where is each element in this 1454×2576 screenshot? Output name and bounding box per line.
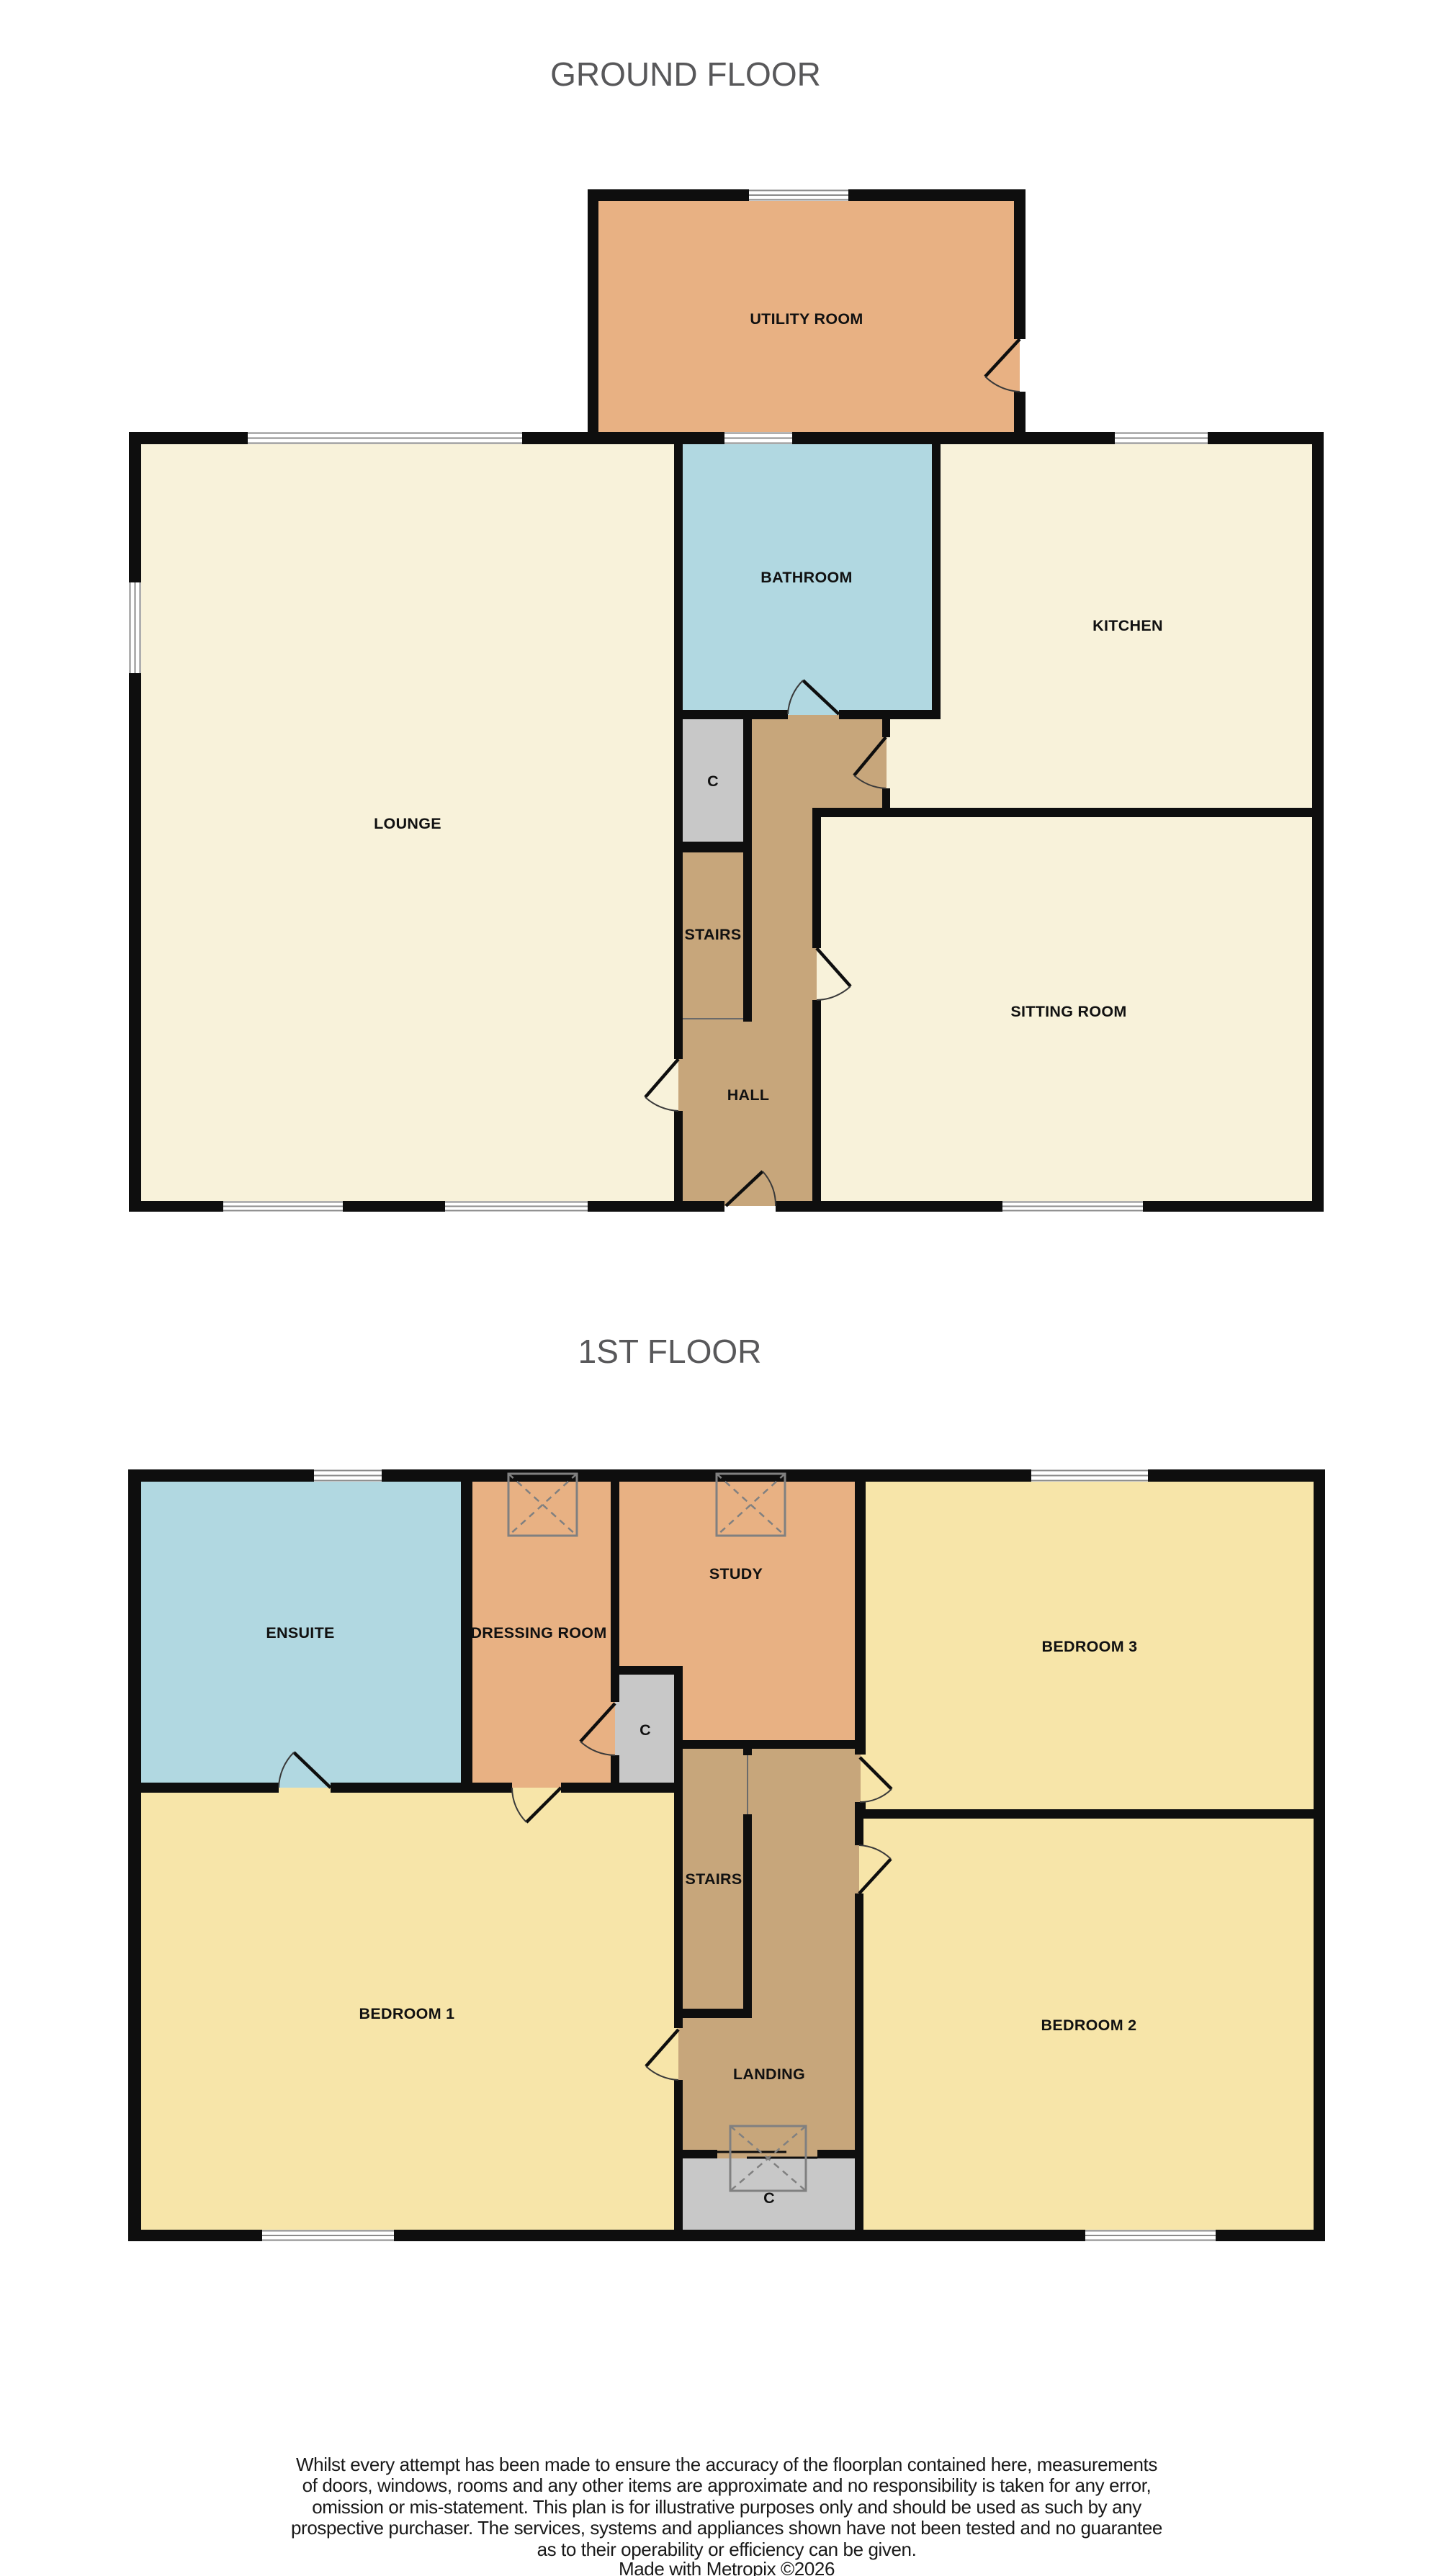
svg-text:Whilst every attempt has been: Whilst every attempt has been made to en… <box>296 2454 1157 2475</box>
svg-text:of doors, windows, rooms and a: of doors, windows, rooms and any other i… <box>302 2474 1152 2496</box>
svg-text:BATHROOM: BATHROOM <box>760 569 852 586</box>
svg-text:LANDING: LANDING <box>733 2066 805 2083</box>
svg-text:STAIRS: STAIRS <box>684 926 741 943</box>
svg-text:BEDROOM 3: BEDROOM 3 <box>1042 1638 1138 1655</box>
svg-text:prospective purchaser. The ser: prospective purchaser. The services, sys… <box>291 2517 1162 2539</box>
svg-text:C: C <box>640 1721 651 1739</box>
svg-text:STAIRS: STAIRS <box>685 1870 742 1888</box>
svg-text:C: C <box>707 773 719 790</box>
svg-text:KITCHEN: KITCHEN <box>1092 617 1163 634</box>
svg-text:Made with Metropix ©2026: Made with Metropix ©2026 <box>619 2558 835 2576</box>
svg-text:omission or mis-statement. Thi: omission or mis-statement. This plan is … <box>312 2496 1141 2518</box>
svg-text:LOUNGE: LOUNGE <box>374 815 441 832</box>
svg-text:STUDY: STUDY <box>709 1565 763 1582</box>
svg-text:1ST FLOOR: 1ST FLOOR <box>578 1333 762 1370</box>
svg-text:SITTING ROOM: SITTING ROOM <box>1010 1003 1126 1020</box>
svg-text:HALL: HALL <box>727 1086 770 1104</box>
svg-text:DRESSING ROOM: DRESSING ROOM <box>470 1624 606 1641</box>
svg-text:BEDROOM 2: BEDROOM 2 <box>1041 2017 1137 2034</box>
svg-text:ENSUITE: ENSUITE <box>266 1624 334 1641</box>
svg-text:BEDROOM 1: BEDROOM 1 <box>359 2005 455 2022</box>
svg-text:UTILITY ROOM: UTILITY ROOM <box>750 310 863 328</box>
svg-text:as to their operability or eff: as to their operability or efficiency ca… <box>537 2539 917 2560</box>
svg-text:C: C <box>763 2189 775 2207</box>
svg-text:GROUND FLOOR: GROUND FLOOR <box>550 55 821 93</box>
